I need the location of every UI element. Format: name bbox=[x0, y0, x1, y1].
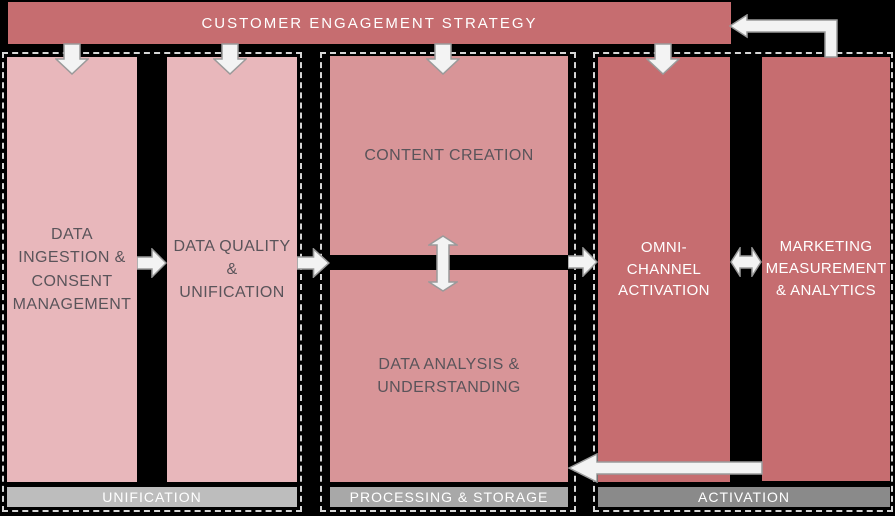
arrow-right-icon bbox=[297, 248, 330, 278]
arrow-left-return-icon bbox=[568, 453, 763, 483]
banner-customer-engagement-strategy: CUSTOMER ENGAGEMENT STRATEGY bbox=[8, 2, 731, 44]
diagram-canvas: CUSTOMER ENGAGEMENT STRATEGY DATA INGEST… bbox=[0, 0, 895, 516]
arrow-up-left-feedback-icon bbox=[729, 14, 838, 58]
arrow-right-icon bbox=[568, 247, 598, 277]
box-data-ingestion-consent-management: DATA INGESTION & CONSENT MANAGEMENT bbox=[7, 57, 137, 482]
arrow-right-icon bbox=[137, 248, 167, 278]
box-content-creation: CONTENT CREATION bbox=[330, 56, 568, 255]
arrow-both-vertical-icon bbox=[428, 235, 458, 292]
footer-bar-activation: ACTIVATION bbox=[598, 487, 890, 507]
box-marketing-measurement-analytics: MARKETING MEASUREMENT & ANALYTICS bbox=[762, 57, 890, 481]
arrow-down-icon bbox=[55, 43, 89, 75]
arrow-down-icon bbox=[213, 43, 247, 75]
arrow-both-horizontal-icon bbox=[730, 247, 762, 277]
box-data-quality-unification: DATA QUALITY & UNIFICATION bbox=[167, 57, 297, 482]
arrow-down-icon bbox=[646, 43, 680, 75]
box-data-analysis-understanding: DATA ANALYSIS & UNDERSTANDING bbox=[330, 270, 568, 482]
arrow-down-icon bbox=[426, 43, 460, 75]
box-omni-channel-activation: OMNI-CHANNEL ACTIVATION bbox=[598, 57, 730, 482]
footer-bar-unification: UNIFICATION bbox=[7, 487, 297, 507]
footer-bar-processing-storage: PROCESSING & STORAGE bbox=[330, 487, 568, 507]
